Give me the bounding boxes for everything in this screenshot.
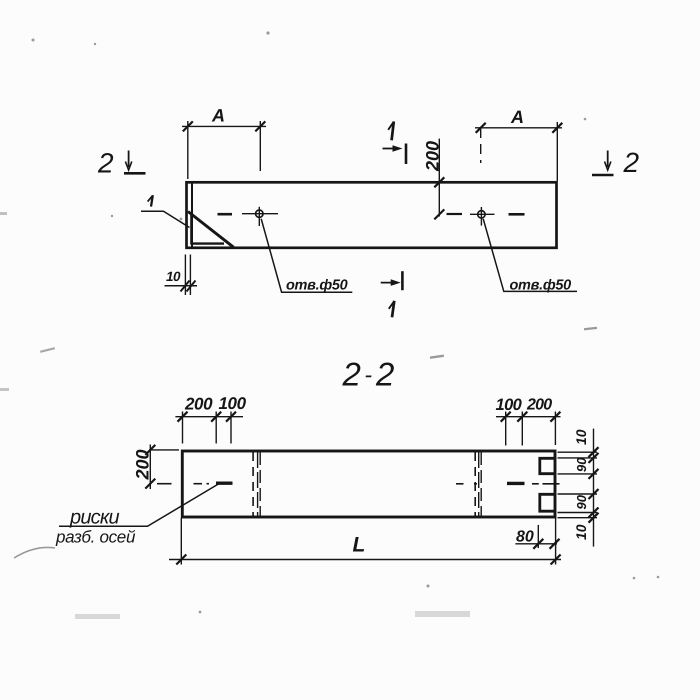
svg-text:10: 10 <box>166 269 181 284</box>
svg-text:90: 90 <box>574 494 589 509</box>
svg-text:риски: риски <box>69 507 119 529</box>
svg-text:A: A <box>211 106 225 126</box>
svg-text:A: A <box>510 107 524 127</box>
svg-text:90: 90 <box>574 457 589 472</box>
svg-text:2: 2 <box>623 147 640 178</box>
svg-text:80: 80 <box>516 529 534 546</box>
svg-text:100: 100 <box>496 396 523 414</box>
svg-text:200: 200 <box>423 141 443 172</box>
svg-text:200: 200 <box>133 449 153 480</box>
svg-text:отв.ф50: отв.ф50 <box>286 278 348 294</box>
svg-text:100: 100 <box>219 394 247 413</box>
svg-text:отв.ф50: отв.ф50 <box>510 278 572 294</box>
svg-text:200: 200 <box>526 397 552 414</box>
svg-text:2: 2 <box>97 148 114 179</box>
svg-text:200: 200 <box>184 395 213 414</box>
svg-text:L: L <box>353 534 366 557</box>
svg-text:разб. осей: разб. осей <box>55 528 136 547</box>
svg-text:2-2: 2-2 <box>342 356 395 393</box>
svg-text:10: 10 <box>573 429 589 445</box>
svg-text:10: 10 <box>573 524 589 540</box>
